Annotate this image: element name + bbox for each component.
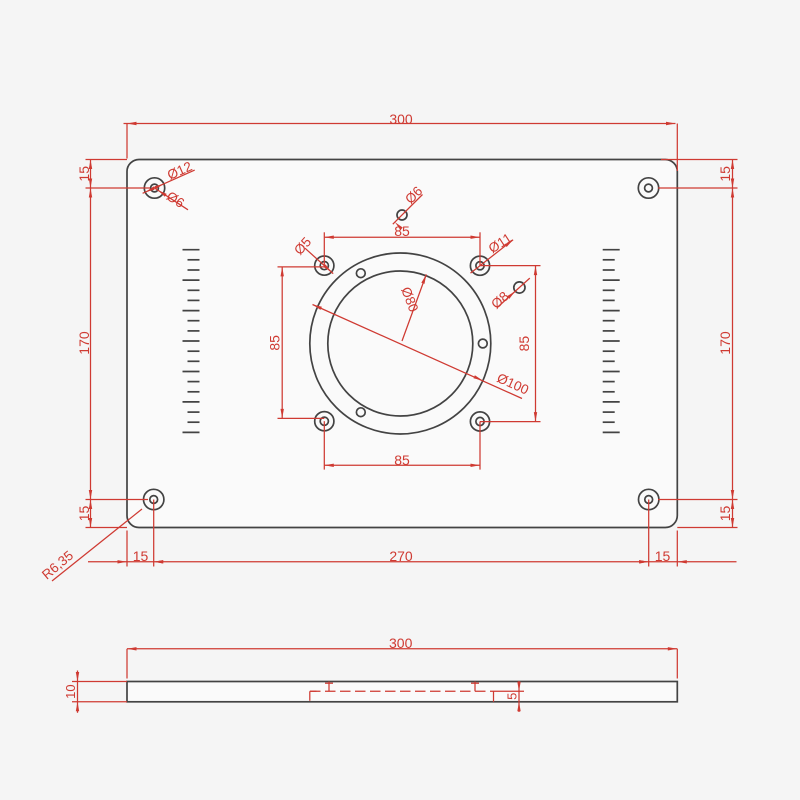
svg-text:15: 15 [133,548,149,564]
svg-text:300: 300 [389,111,413,127]
svg-text:85: 85 [394,223,410,239]
svg-text:85: 85 [516,336,532,352]
svg-text:15: 15 [717,506,733,522]
svg-text:170: 170 [717,331,733,355]
svg-text:15: 15 [717,166,733,182]
svg-text:15: 15 [655,548,671,564]
svg-text:15: 15 [76,166,92,182]
svg-text:85: 85 [394,452,410,468]
svg-text:300: 300 [389,635,413,651]
svg-text:270: 270 [389,548,413,564]
svg-text:15: 15 [76,506,92,522]
svg-text:10: 10 [63,684,78,698]
svg-text:5: 5 [504,693,519,700]
svg-text:170: 170 [76,331,92,355]
svg-text:85: 85 [267,335,283,351]
